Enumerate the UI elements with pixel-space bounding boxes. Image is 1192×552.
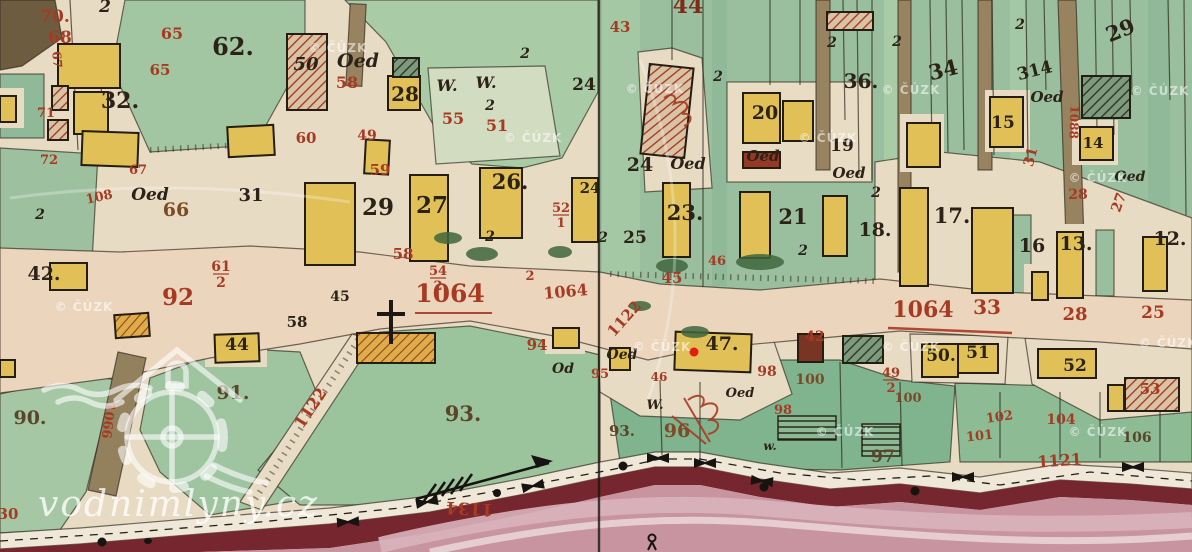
svg-text:54: 54 (429, 264, 447, 279)
parcel-number: 25 (623, 228, 647, 248)
parcel-number: 1088 (1066, 105, 1081, 139)
parcel-number: 98 (757, 364, 776, 380)
parcel-number: 1064 (415, 279, 485, 308)
script-label: Oed (832, 164, 866, 182)
script-label: 2 (519, 46, 530, 62)
parcel-number: 52 (1063, 356, 1087, 376)
parcel-number: 100 (795, 372, 824, 388)
svg-text:49: 49 (882, 366, 900, 381)
cadastral-map: 262.32.50Oed28W.W.2244424OedOed2019Oed36… (0, 0, 1192, 552)
site-watermark-text: vodnimlyny.cz (38, 484, 319, 525)
parcel-number: 2 (525, 269, 534, 284)
parcel-number: 25 (1141, 303, 1165, 323)
building (0, 360, 15, 377)
parcel-number: 12. (1153, 228, 1186, 250)
parcel-number: 33 (973, 295, 1001, 319)
script-label: Od (552, 361, 574, 377)
parcel-number: 58 (287, 313, 308, 331)
parcel-number: 65 (150, 61, 171, 79)
parcel-number: 49 (357, 128, 376, 144)
script-label: 2 (1014, 17, 1025, 33)
parcel-number: 94 (527, 336, 548, 354)
parcel-number: 62. (212, 32, 254, 61)
parcel-number: 43 (610, 18, 631, 36)
script-label: Oed (1030, 88, 1064, 106)
parcel-number: 95 (591, 367, 609, 382)
cuzk-watermark: © ČÚZK (799, 130, 858, 145)
parcel-number: 67 (49, 51, 64, 69)
script-label: Oed (726, 386, 755, 401)
svg-text:2: 2 (886, 381, 895, 396)
parcel-number: 27 (416, 192, 448, 219)
parcel-number: 93. (609, 422, 635, 440)
parcel-number: 44 (673, 0, 704, 19)
parcel-number: 72 (40, 153, 58, 168)
parcel-number: 20 (752, 102, 778, 124)
parcel-number: 1064 (543, 280, 589, 303)
parcel-number: 58 (336, 73, 358, 92)
parcel-number: 31 (238, 185, 263, 206)
parcel-number: 26. (492, 169, 529, 194)
building (227, 125, 275, 157)
building (1032, 272, 1048, 300)
parcel-number: 67 (129, 163, 147, 178)
parcel-number: 42 (805, 329, 824, 345)
cadastral-map-viewport: 262.32.50Oed28W.W.2244424OedOed2019Oed36… (0, 0, 1192, 552)
parcel-number: 42. (27, 263, 60, 285)
cuzk-watermark: © ČÚZK (816, 424, 875, 439)
parcel-number: 24 (627, 154, 653, 176)
parcel-number: 28 (1062, 304, 1087, 325)
script-label: 2 (484, 229, 495, 245)
parcel-number: 13. (1059, 233, 1092, 255)
cuzk-watermark: © ČÚZK (1069, 424, 1128, 439)
parcel-number: 28 (1068, 187, 1087, 203)
parcel-number: 29 (362, 194, 394, 221)
parcel-number: 65 (161, 24, 183, 43)
script-label: Oed (670, 154, 705, 173)
svg-text:52: 52 (552, 201, 570, 216)
script-label: 2 (34, 207, 45, 223)
parcel-number: 24 (580, 179, 601, 197)
building (907, 123, 940, 167)
parcel-number: 60 (296, 129, 317, 147)
parcel-number: 46 (651, 370, 668, 384)
parcel-number: 101 (965, 428, 994, 446)
parcel-number: 36. (844, 69, 879, 93)
parcel-number: 97 (871, 447, 895, 467)
parcel-number: 98 (774, 403, 792, 418)
parcel-number: 1134 (445, 497, 493, 519)
parcel-number: 55 (442, 109, 464, 128)
building (972, 208, 1013, 293)
parcel-green (712, 0, 727, 286)
building-hatched (357, 333, 435, 363)
building-hatched (1082, 76, 1130, 118)
parcel-number: 30 (0, 505, 18, 523)
cuzk-watermark: © ČÚZK (1069, 170, 1128, 185)
building-hatched (114, 313, 150, 338)
script-label: 2 (891, 34, 902, 50)
parcel-number: 68 (48, 28, 72, 48)
script-label: W. (436, 76, 457, 95)
building-hatched (393, 58, 419, 77)
parcel-number: 21 (778, 204, 807, 229)
building (0, 96, 16, 122)
building (1108, 385, 1124, 411)
script-label: 2 (826, 35, 837, 51)
script-label: 50 (293, 54, 319, 75)
cuzk-watermark: © ČÚZK (882, 339, 941, 354)
cuzk-watermark: © ČÚZK (1139, 335, 1192, 350)
cuzk-watermark: © ČÚZK (882, 82, 941, 97)
building (553, 328, 579, 348)
cuzk-watermark: © ČÚZK (1131, 83, 1190, 98)
parcel-number: 51 (966, 343, 990, 363)
svg-text:61: 61 (211, 259, 230, 275)
building (58, 44, 120, 88)
parcel-number: 23. (667, 200, 704, 225)
building (305, 183, 355, 265)
script-label: Oed (746, 147, 780, 165)
script-label: 2 (484, 98, 495, 114)
cuzk-watermark: © ČÚZK (309, 40, 368, 55)
script-label: 2 (597, 230, 608, 246)
parcel-number: 15 (991, 113, 1015, 133)
parcel-number: 1064 (892, 297, 953, 323)
parcel-green (1096, 230, 1114, 296)
parcel-number: 53 (1140, 380, 1161, 398)
parcel-number: 96 (664, 420, 690, 442)
parcel-number: 18. (858, 219, 891, 241)
parcel-number: 71 (37, 106, 55, 121)
cuzk-watermark: © ČÚZK (633, 339, 692, 354)
script-label: 2 (797, 243, 808, 259)
parcel-number: 1121 (1037, 449, 1083, 471)
script-label: 2 (870, 185, 881, 201)
script-label: w. (763, 439, 776, 453)
script-label: 2 (712, 69, 723, 85)
cuzk-watermark: © ČÚZK (504, 130, 563, 145)
parcel-number: 45 (662, 269, 683, 287)
parcel-number: 24 (572, 75, 596, 95)
parcel-number: 14 (1083, 134, 1104, 152)
building-hatched (48, 120, 68, 140)
parcel-number: 44 (225, 335, 249, 355)
parcel-number: 47. (705, 333, 738, 355)
building (900, 188, 928, 286)
parcel-number: 66 (163, 199, 189, 221)
parcel-number: 17. (934, 203, 971, 228)
parcel-number: 70. (40, 7, 70, 27)
script-label: W. (475, 73, 496, 92)
parcel-number: 32. (101, 88, 139, 114)
parcel-number: 16 (1019, 235, 1045, 257)
script-label: W. (646, 398, 663, 413)
parcel-number: 100 (894, 391, 921, 406)
building-hatched (827, 12, 873, 30)
building (81, 131, 138, 167)
svg-text:2: 2 (216, 275, 226, 291)
parcel-number: 46 (708, 254, 726, 269)
cuzk-watermark: © ČÚZK (55, 299, 114, 314)
building-hatched (843, 336, 883, 363)
cuzk-watermark: © ČÚZK (626, 81, 685, 96)
parcel-number: 59 (370, 161, 391, 179)
parcel-number: 93. (445, 401, 482, 426)
parcel-number: 45 (330, 289, 349, 305)
parcel-number: 28 (391, 82, 419, 106)
building (823, 196, 847, 256)
parcel-number: 92 (162, 284, 194, 311)
parcel-number: 58 (393, 245, 414, 263)
parcel-number: 90. (13, 407, 46, 429)
svg-text:1: 1 (556, 216, 565, 231)
parcel-green (1148, 0, 1170, 214)
building (740, 192, 770, 258)
script-label: 2 (98, 0, 111, 17)
